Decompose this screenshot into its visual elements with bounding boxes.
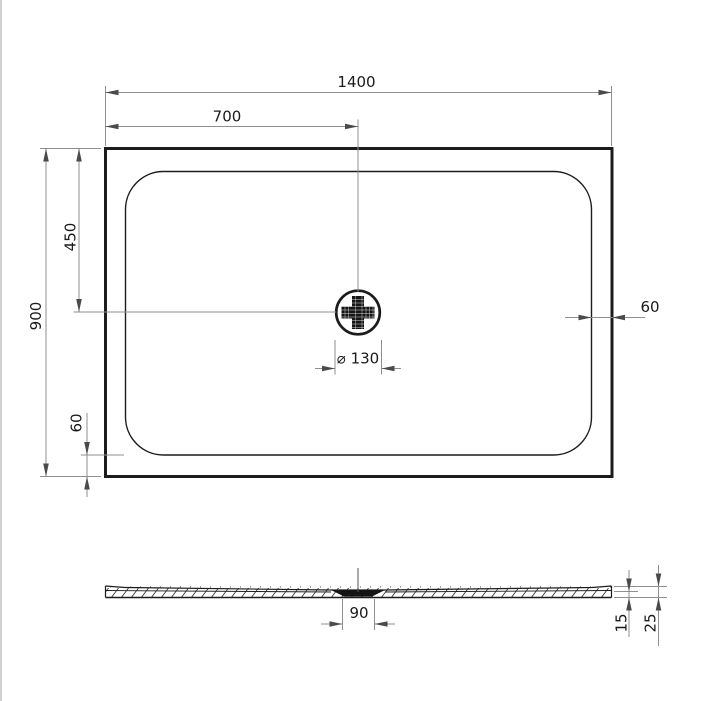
shower-tray-technical-drawing: 1400 700 900 450 60 — [0, 0, 701, 701]
dim-drain-diameter: ⌀ 130 — [315, 340, 401, 375]
arrowhead — [599, 90, 612, 96]
dim-rim-margin-bottom: 60 — [68, 413, 125, 497]
dim-total-height-label: 25 — [642, 613, 660, 632]
arrowhead — [43, 464, 49, 477]
dim-drain-recess-width-label: 90 — [349, 604, 368, 622]
arrowhead — [322, 366, 335, 372]
drawing-canvas: 1400 700 900 450 60 — [0, 0, 701, 701]
dim-drain-diameter-label: ⌀ 130 — [337, 350, 379, 368]
arrowhead — [612, 315, 625, 321]
section-view — [106, 568, 612, 598]
dimensions-section-view: 90 15 25 — [321, 565, 667, 646]
dim-overall-width-label: 1400 — [337, 73, 375, 91]
arrowhead — [345, 124, 358, 130]
arrowhead — [579, 315, 592, 321]
arrowhead — [106, 124, 119, 130]
dim-total-height: 25 — [642, 565, 662, 646]
arrowhead — [330, 621, 343, 627]
arrowhead — [375, 621, 388, 627]
dimensions-top-view: 1400 700 900 450 60 — [27, 73, 660, 497]
arrowhead — [656, 598, 662, 611]
dim-drain-offset-y-label: 450 — [62, 223, 80, 252]
arrowhead — [382, 366, 395, 372]
arrowhead — [84, 442, 90, 455]
dim-drain-recess-width: 90 — [321, 599, 395, 630]
dim-edge-height-label: 15 — [613, 613, 631, 632]
arrowhead — [43, 149, 49, 162]
arrowhead — [106, 90, 119, 96]
arrowhead — [84, 477, 90, 490]
arrowhead — [656, 574, 662, 587]
dim-overall-depth-label: 900 — [27, 302, 45, 331]
arrowhead — [76, 149, 82, 162]
dim-drain-offset-x-label: 700 — [213, 108, 242, 126]
arrowhead — [76, 299, 82, 312]
arrowhead — [626, 598, 632, 611]
dim-drain-offset-x: 700 — [106, 108, 359, 292]
dim-rim-margin-bottom-label: 60 — [68, 413, 86, 432]
dim-drain-offset-y: 450 — [62, 149, 337, 313]
arrowhead — [626, 579, 632, 592]
drain — [336, 291, 380, 335]
dim-rim-margin-right-label: 60 — [640, 298, 659, 316]
